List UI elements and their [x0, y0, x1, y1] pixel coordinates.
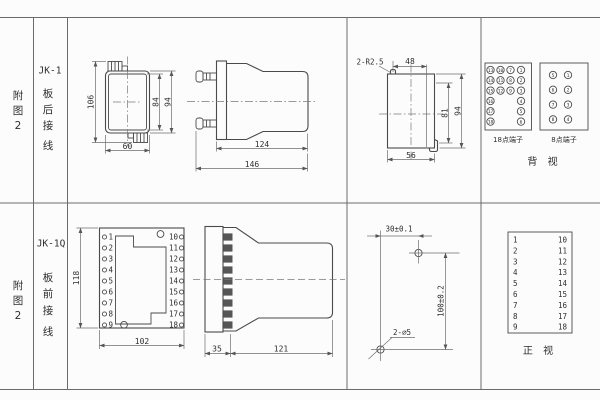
terminal-block-18-label: 18点端子: [493, 135, 523, 144]
model-name: JK-1: [39, 66, 62, 77]
wiring-char: 线: [43, 325, 54, 338]
terminal-number: 14: [488, 78, 494, 84]
terminal-number: 13: [169, 265, 178, 274]
terminal-number: 7: [509, 68, 512, 74]
dim-label: 121: [274, 345, 289, 354]
terminal-number: 1: [520, 68, 523, 74]
terminal-number: 18: [488, 119, 494, 125]
dim-label: 81: [441, 108, 450, 118]
terminal-number: 18: [169, 320, 179, 329]
terminal-block-8-label: 8点端子: [551, 135, 576, 144]
terminal-number: 16: [169, 298, 179, 307]
front-view-label: 正 视: [523, 344, 553, 357]
terminal-number: 8: [509, 78, 512, 84]
terminal-number: 12: [498, 88, 504, 94]
terminal-number: 6: [109, 287, 114, 296]
dim-label: 100±0.2: [437, 285, 446, 317]
terminal-number: 13: [488, 68, 494, 74]
dim-label: 106: [87, 95, 96, 110]
terminal-number: 1: [567, 73, 570, 79]
technical-drawing-sheet: 附 图 2 JK-1 板 后 接 线 106: [0, 0, 600, 400]
dim-label: 30±0.1: [385, 225, 412, 234]
table-number: 8: [513, 312, 518, 321]
terminal-number: 2: [109, 243, 114, 252]
rear-view-label: 背 视: [527, 155, 557, 168]
terminal-number: 9: [109, 320, 114, 329]
fig-char: 图: [13, 105, 24, 117]
terminal-number: 11: [498, 78, 504, 84]
terminal-number: 12: [169, 254, 178, 263]
drawing-canvas: 附 图 2 JK-1 板 后 接 线 106: [0, 0, 600, 400]
terminal-number: 14: [169, 276, 179, 285]
table-number: 2: [513, 246, 518, 255]
terminal-number: 3: [109, 254, 114, 263]
terminal-number: 5: [520, 109, 523, 115]
model-name: JK-1Q: [37, 239, 66, 250]
terminal-number: 6: [520, 119, 523, 125]
table-number: 12: [558, 257, 567, 266]
terminal-number: 10: [498, 68, 504, 74]
terminal-number: 7: [109, 298, 114, 307]
terminal-number: 10: [169, 232, 179, 241]
wiring-char: 后: [43, 104, 54, 116]
table-number: 14: [558, 279, 568, 288]
table-number: 10: [558, 236, 568, 245]
terminal-number: 8: [552, 117, 555, 123]
dim-label: 48: [405, 57, 415, 66]
dim-label: 56: [406, 151, 416, 160]
wiring-char: 接: [43, 304, 54, 317]
table-number: 9: [513, 323, 518, 332]
table-number: 11: [558, 246, 567, 255]
terminal-number: 7: [552, 102, 555, 108]
fig-char: 2: [15, 310, 22, 322]
radius-label: 2-R2.5: [356, 58, 383, 67]
table-number: 16: [558, 301, 568, 310]
terminal-number: 15: [488, 88, 494, 94]
table-number: 3: [513, 257, 518, 266]
wiring-char: 板: [43, 271, 54, 284]
terminal-number: 2: [567, 88, 570, 94]
fig-char: 图: [13, 295, 24, 307]
dim-label: 60: [123, 142, 133, 151]
terminal-number: 3: [520, 88, 523, 94]
table-number: 17: [558, 312, 567, 321]
terminal-number: 3: [567, 102, 570, 108]
terminal-number: 4: [567, 117, 570, 123]
dim-label: 94: [164, 97, 173, 107]
terminal-number: 4: [520, 99, 523, 105]
dim-label: 118: [72, 271, 81, 286]
dim-label: 102: [135, 337, 150, 346]
table-number: 6: [513, 290, 518, 299]
terminal-number: 16: [488, 99, 494, 105]
wiring-char: 线: [43, 139, 54, 152]
dim-label: 94: [454, 106, 463, 116]
dim-label: 146: [245, 160, 260, 169]
terminal-number: 5: [109, 276, 114, 285]
table-number: 13: [558, 268, 567, 277]
table-number: 1: [513, 236, 518, 245]
terminal-number: 11: [169, 243, 178, 252]
wiring-char: 接: [43, 119, 54, 132]
wiring-char: 板: [43, 87, 54, 100]
terminal-number: 5: [552, 73, 555, 79]
table-number: 5: [513, 279, 518, 288]
wiring-char: 前: [43, 287, 54, 300]
terminal-number: 2: [520, 78, 523, 84]
table-number: 7: [513, 301, 518, 310]
terminal-number: 15: [169, 287, 178, 296]
fig-char: 附: [13, 279, 24, 292]
dim-label: 124: [255, 140, 270, 149]
terminal-number: 6: [552, 88, 555, 94]
sheet-background: [0, 0, 600, 400]
terminal-number: 17: [488, 109, 494, 115]
terminal-number: 4: [109, 265, 114, 274]
terminal-number: 1: [109, 232, 114, 241]
fig-char: 2: [15, 120, 22, 132]
table-number: 18: [558, 323, 568, 332]
terminal-number: 8: [109, 309, 114, 318]
table-number: 4: [513, 268, 518, 277]
hole-label: 2-∅5: [393, 328, 411, 337]
dim-label: 84: [152, 97, 161, 107]
table-number: 15: [558, 290, 567, 299]
fig-char: 附: [13, 89, 24, 102]
dim-label: 35: [212, 345, 222, 354]
terminal-number: 17: [169, 309, 178, 318]
terminal-number: 9: [509, 88, 512, 94]
terminal-studs: [224, 233, 233, 328]
